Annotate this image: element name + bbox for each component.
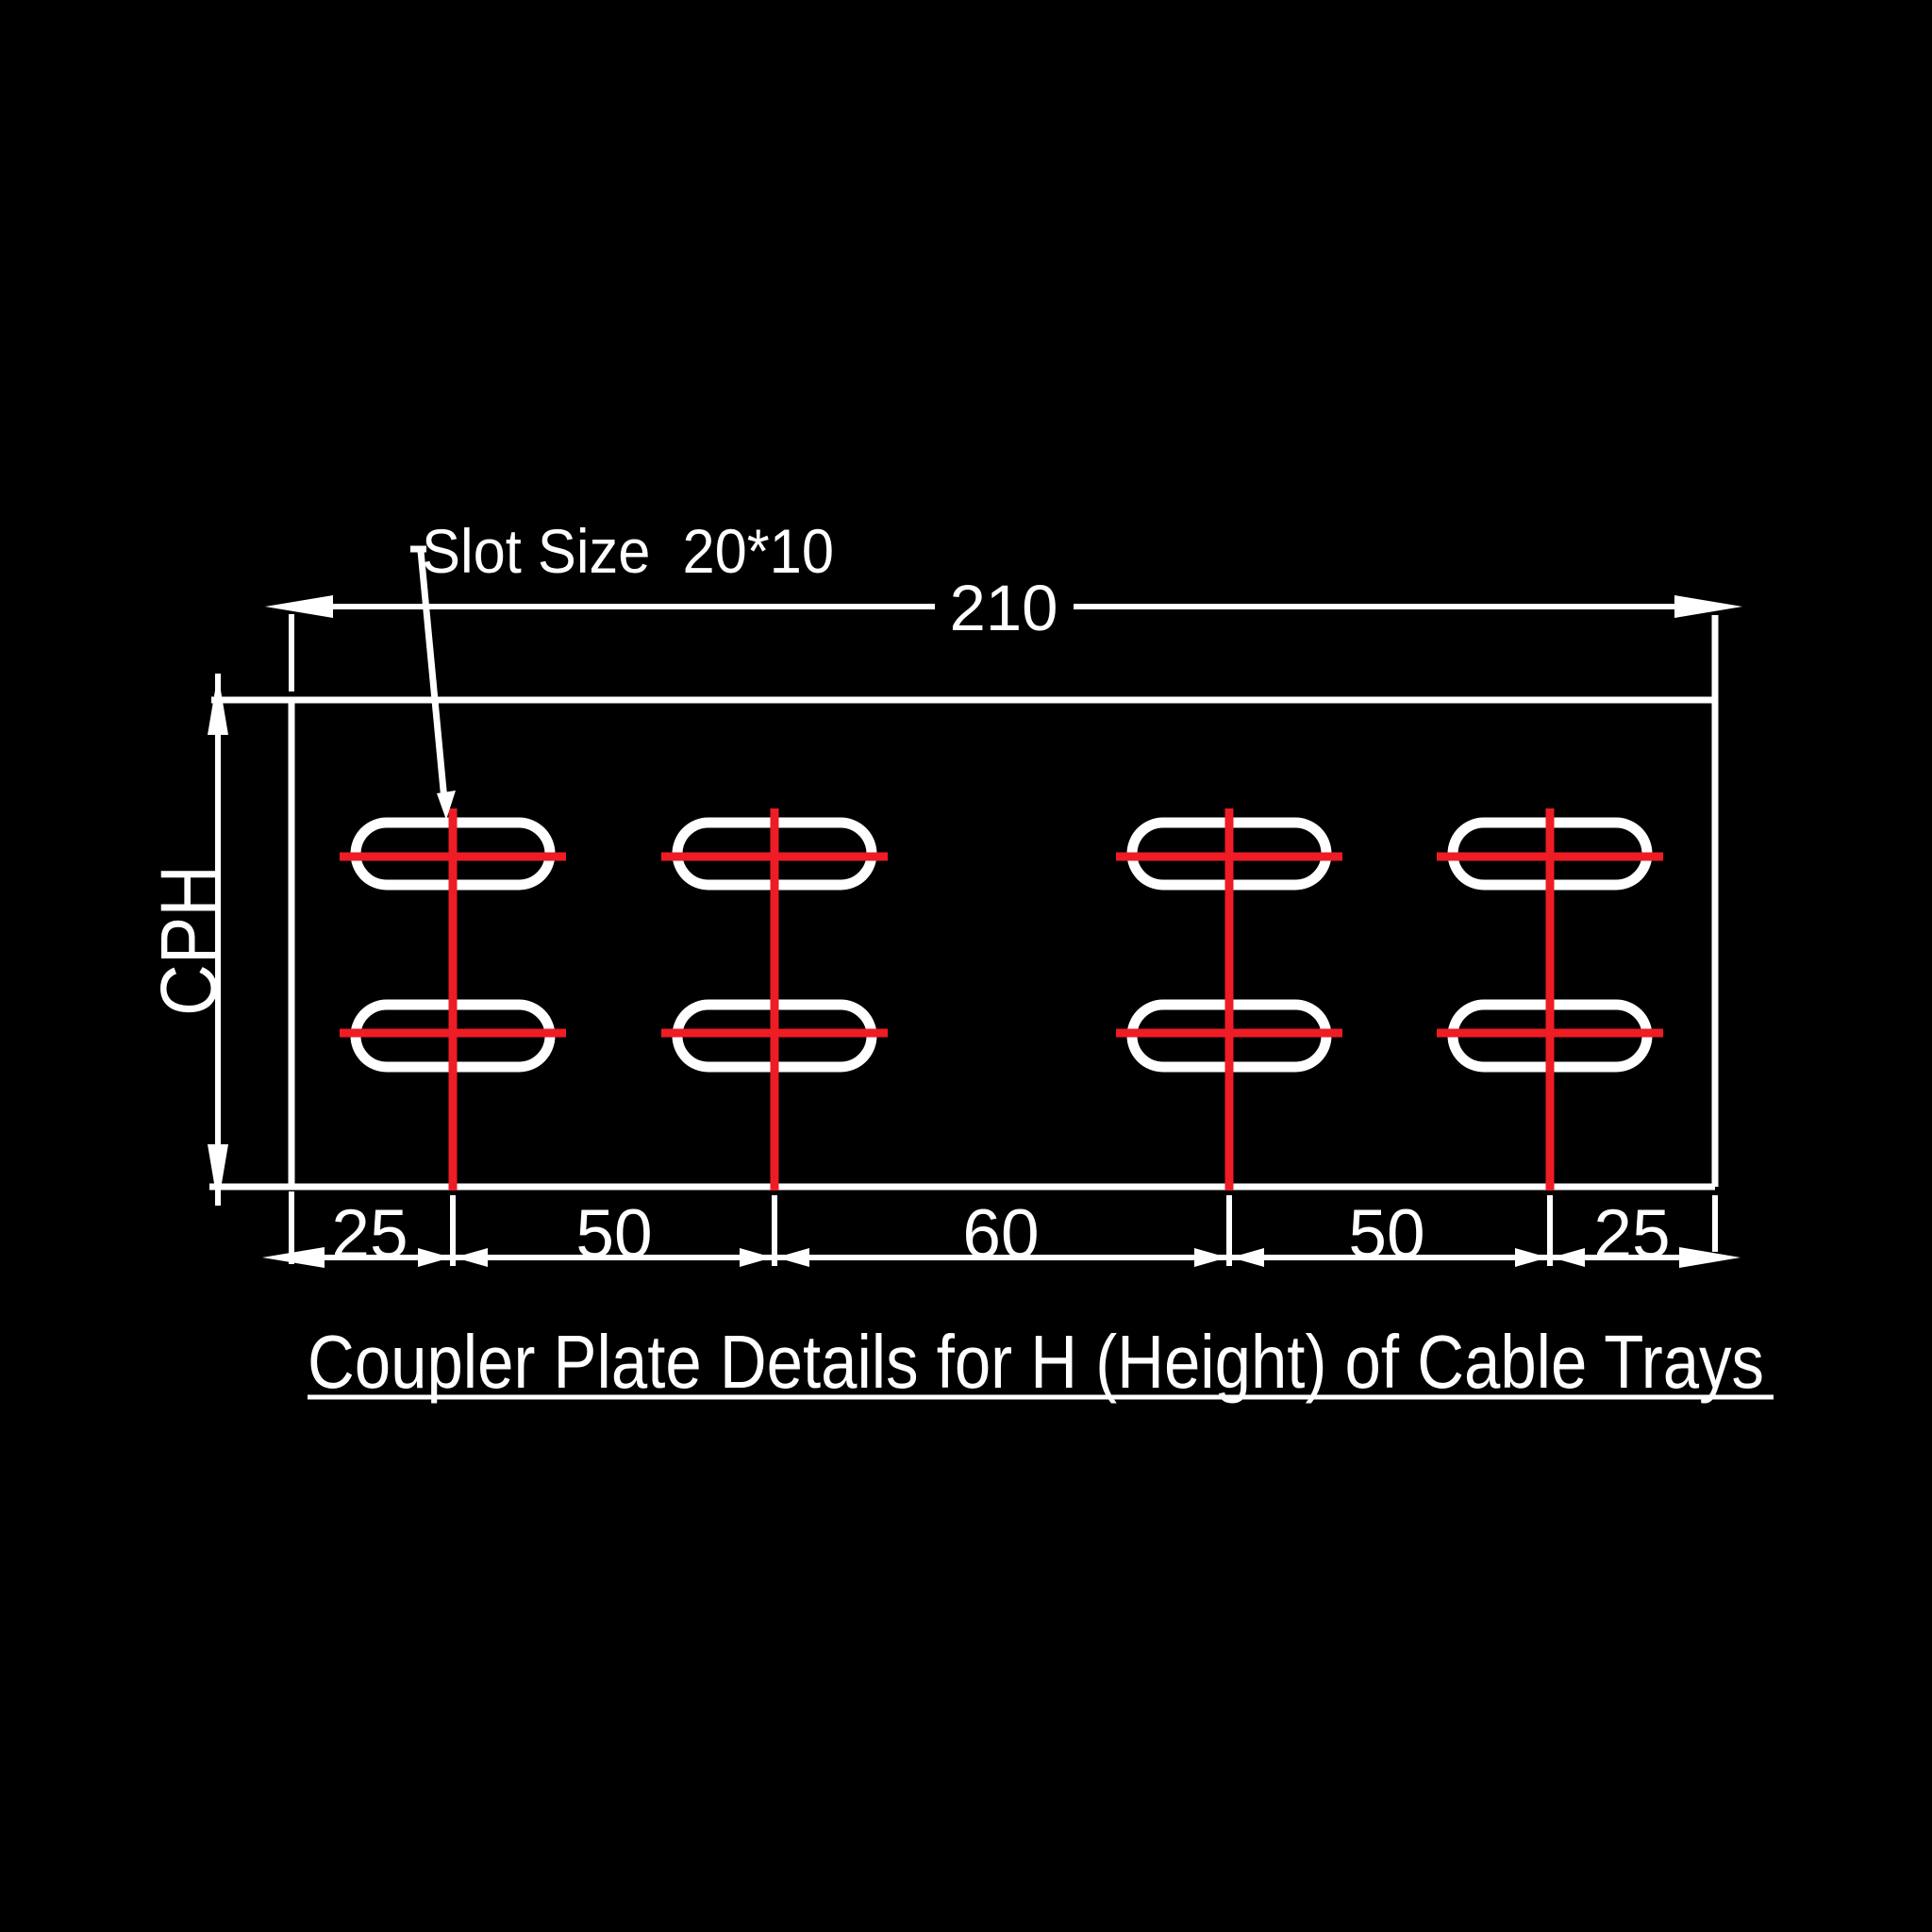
svg-text:50: 50	[1348, 1196, 1424, 1273]
svg-text:210: 210	[949, 572, 1058, 644]
svg-text:25: 25	[331, 1196, 408, 1273]
svg-text:50: 50	[575, 1196, 652, 1273]
svg-text:25: 25	[1593, 1196, 1670, 1273]
svg-text:Slot Size 20*10: Slot Size 20*10	[422, 516, 834, 586]
svg-text:Coupler Plate Details for H (H: Coupler Plate Details for H (Height) of …	[308, 1320, 1764, 1404]
svg-text:60: 60	[962, 1196, 1039, 1273]
svg-text:CPH: CPH	[144, 865, 233, 1016]
